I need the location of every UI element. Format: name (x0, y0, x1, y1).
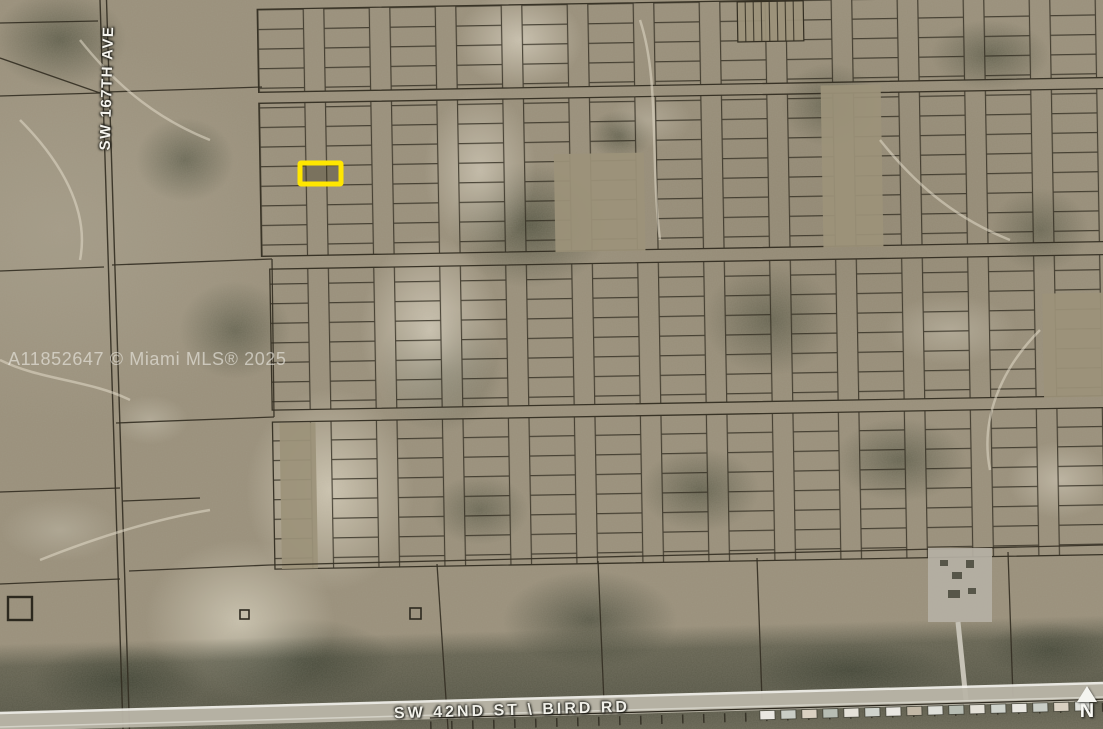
north-arrow: N (1074, 686, 1100, 721)
listing-photo-satellite-map: SW 167TH AVE SW 42ND ST \ BIRD RD A11852… (0, 0, 1103, 729)
parcel-grid (257, 0, 1103, 569)
north-arrow-icon (1077, 686, 1097, 702)
mls-watermark: A11852647 © Miami MLS® 2025 (8, 349, 287, 370)
cleared-pad-site (928, 548, 992, 700)
subject-parcel-highlight (300, 163, 341, 184)
street-label-sw-167th-ave: SW 167TH AVE (97, 25, 117, 150)
small-outlined-parcels (8, 597, 421, 620)
hatched-block (737, 1, 804, 42)
north-label: N (1074, 701, 1100, 721)
